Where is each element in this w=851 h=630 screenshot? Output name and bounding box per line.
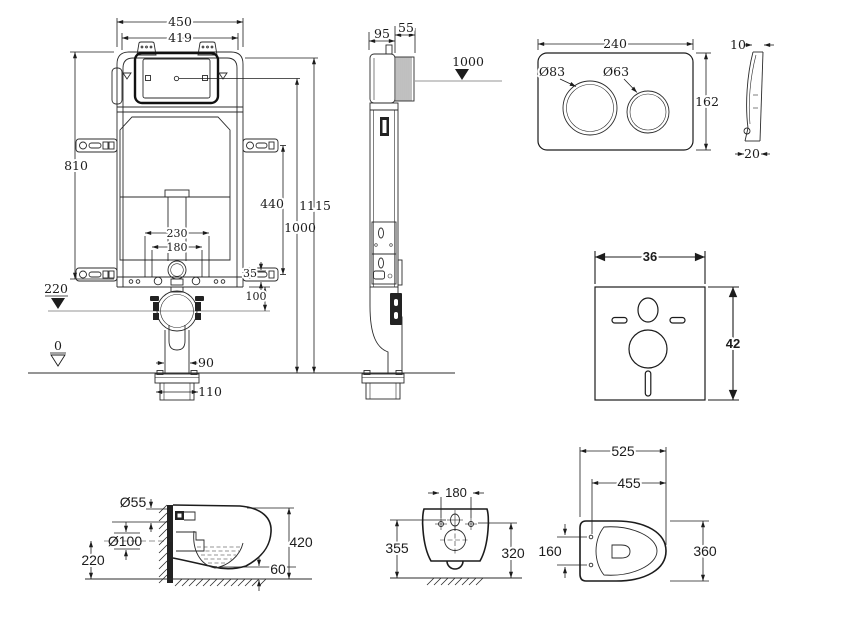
dim-toilet-width: 360 xyxy=(693,543,717,559)
dim-rear-height-left: 355 xyxy=(385,540,409,556)
flush-plate-front-view: 240 162 Ø83 Ø63 xyxy=(538,36,719,150)
dim-offset: 35 xyxy=(243,267,257,280)
cistern-front-view: 450 419 810 440 1000 1115 230 180 xyxy=(28,14,455,400)
dim-toilet-height: 420 xyxy=(289,534,313,550)
dim-rear-height-right: 320 xyxy=(501,545,525,561)
sound-insulation-mat: 36 42 xyxy=(595,249,740,400)
dim-flange-width: 110 xyxy=(198,384,222,399)
dim-inlet-diameter: Ø55 xyxy=(120,494,147,510)
level-flush-height: 1000 xyxy=(452,54,484,69)
dim-hole-to-front: 455 xyxy=(617,475,641,491)
dim-bolt-spacing-outer: 230 xyxy=(167,227,188,240)
fixing-hole-top xyxy=(589,535,593,539)
cistern-front-dimensions: 450 419 810 440 1000 1115 230 180 xyxy=(28,14,455,399)
toilet-top-outline xyxy=(580,521,666,581)
dim-mat-height: 42 xyxy=(726,336,740,351)
fixing-hole-bottom xyxy=(589,563,593,567)
dim-cistern-inner-width: 419 xyxy=(168,30,192,45)
level-drain: 220 xyxy=(44,281,68,296)
dim-plate-height: 162 xyxy=(695,94,719,109)
dim-big-button: Ø83 xyxy=(539,64,565,79)
toilet-rear-dimensions: 180 355 320 xyxy=(385,485,525,578)
dim-hole-spacing: 180 xyxy=(445,485,467,500)
dim-bracket-spacing: 440 xyxy=(260,196,284,211)
flush-plate-side-view: 10 20 xyxy=(730,37,774,161)
toilet-rear-view: 180 355 320 xyxy=(385,485,525,585)
housing-hatch xyxy=(397,57,411,101)
dim-bolt-spacing-inner: 180 xyxy=(167,241,188,254)
dim-total-height: 1115 xyxy=(299,198,331,213)
wall-section xyxy=(167,505,173,583)
dim-plate-depth: 20 xyxy=(744,146,760,161)
toilet-top-view: 525 455 160 360 xyxy=(538,443,717,581)
level-marker-open xyxy=(51,355,65,366)
drain-assembly xyxy=(150,291,204,400)
dim-flush-center-height: 1000 xyxy=(284,220,316,235)
big-flush-button xyxy=(563,81,617,135)
level-floor: 0 xyxy=(54,338,62,353)
small-flush-button xyxy=(627,91,669,133)
toilet-installation-drawing: 450 419 810 440 1000 1115 230 180 xyxy=(0,0,851,630)
dim-top-hole-spacing: 160 xyxy=(538,543,562,559)
toilet-top-dimensions: 525 455 160 360 xyxy=(538,443,717,581)
wall-hatching xyxy=(159,505,167,583)
mat-outline xyxy=(595,287,705,400)
flush-access-housing xyxy=(135,53,218,103)
dim-plate-thickness: 10 xyxy=(730,37,746,52)
water-spot xyxy=(612,545,630,558)
level-marker-filled xyxy=(51,298,65,309)
ground-hatching xyxy=(427,578,483,585)
seat-opening xyxy=(596,527,657,575)
dim-housing-depth: 55 xyxy=(398,20,414,35)
toilet-side-dimensions: Ø55 Ø100 220 420 60 xyxy=(81,494,313,591)
dim-small-button: Ø63 xyxy=(603,64,629,79)
dim-clearance: 60 xyxy=(270,561,286,577)
dim-toilet-length: 525 xyxy=(611,443,635,459)
cistern-side-dimensions: 95 55 1000 xyxy=(369,20,502,81)
floor-hatching xyxy=(175,579,266,586)
dim-plate-width: 240 xyxy=(603,36,627,51)
dim-cistern-depth: 95 xyxy=(374,26,390,41)
dim-mat-width: 36 xyxy=(643,249,657,264)
dim-outlet-height: 220 xyxy=(81,552,105,568)
dim-pipe-width: 90 xyxy=(198,355,214,370)
cistern-side-view: 95 55 1000 xyxy=(362,20,502,399)
toilet-rear-outline xyxy=(423,509,489,561)
toilet-side-view: Ø55 Ø100 220 420 60 xyxy=(81,494,313,591)
dim-frame-to-drain: 100 xyxy=(246,290,267,303)
drain-elbow xyxy=(370,287,388,374)
toilet-bowl-profile xyxy=(173,505,271,569)
mat-dimensions: 36 42 xyxy=(595,249,740,400)
rail-fixing-holes xyxy=(129,277,225,292)
level-marker-filled xyxy=(455,69,469,80)
dim-cistern-height: 810 xyxy=(64,158,88,173)
dim-cistern-width: 450 xyxy=(168,14,192,29)
technical-drawing-sheet: 450 419 810 440 1000 1115 230 180 xyxy=(0,0,851,630)
